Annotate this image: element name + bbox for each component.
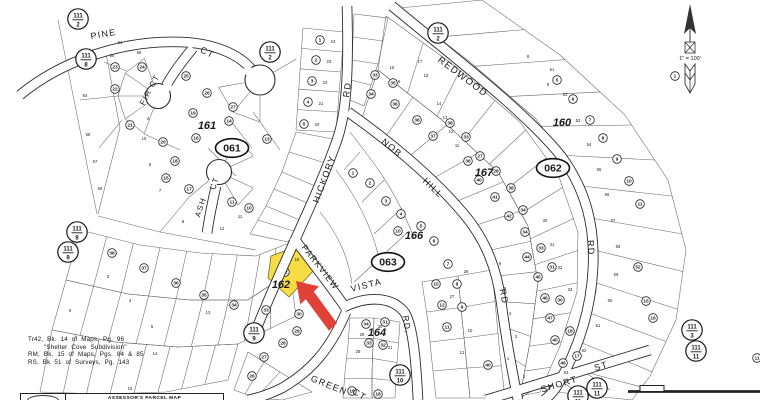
svg-text:15: 15 <box>163 176 169 182</box>
svg-text:35: 35 <box>390 81 396 87</box>
svg-text:33: 33 <box>463 135 469 141</box>
parcel-number-circle: 27 <box>476 152 485 161</box>
lot-number: 24 <box>331 39 336 44</box>
parcel-number-circle: 36 <box>464 157 473 166</box>
svg-text:31: 31 <box>382 320 388 326</box>
lot-number: 3 <box>107 274 110 279</box>
lot-number: 28 <box>356 349 361 354</box>
parcel-number-circle: 5 <box>300 120 309 129</box>
block-number: 164 <box>368 327 386 339</box>
stamp-title: ASSESSOR'S PARCEL MAP <box>66 394 223 400</box>
page-ref-circle: 1118 <box>76 49 96 69</box>
svg-text:23: 23 <box>112 65 118 71</box>
lot-number: 56 <box>98 186 103 191</box>
svg-text:34: 34 <box>522 230 528 236</box>
svg-text:26: 26 <box>204 91 210 97</box>
svg-text:34: 34 <box>520 208 526 214</box>
lot-number: 61 <box>596 323 601 328</box>
parcel-number-circle: 2 <box>366 179 375 188</box>
svg-text:4: 4 <box>307 100 310 106</box>
svg-text:11: 11 <box>444 325 449 331</box>
parcel-number-circle: 9 <box>458 303 467 312</box>
reference-line: RM, Bk. 15 of Maps, Pgs. 84 & 85 <box>28 351 144 359</box>
parcel-number-circle: 46 <box>559 359 568 368</box>
parcel-number-circle: 40 <box>484 361 493 370</box>
svg-text:17: 17 <box>186 187 192 193</box>
parcel-number-circle: 2 <box>312 56 321 65</box>
parcel-number-circle: 10 <box>394 227 403 236</box>
map-book-oval: 062 <box>537 159 570 178</box>
svg-text:24: 24 <box>139 65 145 71</box>
parcel-number-circle: 5 <box>553 76 562 85</box>
svg-text:6: 6 <box>433 239 436 245</box>
parcel-number-circle: 35 <box>389 79 398 88</box>
svg-text:7: 7 <box>589 118 592 124</box>
svg-text:36: 36 <box>173 281 179 287</box>
lot-number: 6 <box>149 162 152 167</box>
svg-text:6: 6 <box>572 97 575 103</box>
parcel-number-circle: 33 <box>537 244 546 253</box>
parcel-number-circle: 27 <box>229 103 238 112</box>
parcel-number-circle: 3 <box>308 77 317 86</box>
parcel-number-circle: 20 <box>159 138 168 147</box>
parcel-number-circle: 38 <box>446 119 455 128</box>
parcel-number-circle: 26 <box>248 372 257 381</box>
parcel-number-circle: 17 <box>185 185 194 194</box>
lot-number: 16 <box>128 386 133 391</box>
parcel-number-circle: 18 <box>171 157 180 166</box>
svg-text:111: 111 <box>63 247 73 253</box>
svg-text:11: 11 <box>637 202 642 208</box>
svg-text:33: 33 <box>538 246 544 252</box>
scale-text: 1" = 100' <box>679 56 701 62</box>
svg-text:10: 10 <box>397 379 404 385</box>
parcel-number-circle: 11 <box>228 198 237 207</box>
page-ref-circle: 1112 <box>260 42 280 62</box>
lot-number: 8 <box>527 54 530 59</box>
page-ref-circle: 11111 <box>568 386 588 400</box>
lot-number: 32 <box>558 265 563 270</box>
block-number: 166 <box>405 230 424 242</box>
parcel-number-circle: 21 <box>126 121 135 130</box>
lot-number: 9 <box>69 308 72 313</box>
assessor-stamp-box: ASSESSOR'S PARCEL MAP <box>20 393 224 400</box>
parcel-number-circle: 29 <box>293 327 302 336</box>
parcel-number-circle: 31 <box>548 263 557 272</box>
svg-text:36: 36 <box>414 118 420 124</box>
svg-text:5: 5 <box>556 78 559 84</box>
parcel-number-circle: 34 <box>519 206 528 215</box>
svg-text:10: 10 <box>626 179 632 185</box>
lot-number: 12 <box>460 350 465 355</box>
lot-number: 4 <box>509 311 512 316</box>
svg-text:7: 7 <box>447 262 450 268</box>
block-number: 160 <box>553 117 572 129</box>
svg-text:33: 33 <box>372 73 378 79</box>
parcel-number-circle: 30 <box>556 296 565 305</box>
parcel-number-circle: 22 <box>111 85 120 94</box>
parcel-number-circle: 27 <box>260 353 269 362</box>
parcel-number-circle: 30 <box>295 310 304 319</box>
svg-text:27: 27 <box>477 154 483 160</box>
svg-text:40: 40 <box>485 363 491 369</box>
svg-text:111: 111 <box>573 391 583 397</box>
lot-number: 59 <box>614 272 619 277</box>
svg-text:11: 11 <box>754 356 759 362</box>
parcel-number-circle: 16 <box>649 314 658 323</box>
svg-text:16: 16 <box>193 136 199 142</box>
street-label-vista: VISTA <box>350 276 383 293</box>
parcel-number-circle: 45 <box>551 336 560 345</box>
svg-text:47: 47 <box>547 316 553 322</box>
page-ref-circle: 1112 <box>428 23 448 43</box>
parcel-number-circle: 36 <box>391 100 400 109</box>
parcel-number-circle: 6 <box>569 95 578 104</box>
parcel-number-circle: 33 <box>462 133 471 142</box>
parcel-number-circle: 4 <box>304 98 313 107</box>
svg-text:45: 45 <box>552 338 558 344</box>
lot-number: 61 <box>118 40 123 45</box>
parcel-number-circle: 37 <box>140 264 149 273</box>
page-ref-circle: 1119 <box>244 323 264 343</box>
svg-text:36: 36 <box>392 102 398 108</box>
parcel-number-circle: 1 <box>349 169 358 178</box>
lot-number: 55 <box>597 167 602 172</box>
parcel-number-circle: 33 <box>262 306 271 315</box>
lot-number: 4 <box>129 298 132 303</box>
svg-text:3: 3 <box>311 79 314 85</box>
lot-number: 2 <box>523 374 526 379</box>
lot-number: 33 <box>568 287 573 292</box>
parcel-number-circle: 9 <box>613 155 622 164</box>
lot-number: 22 <box>323 80 328 85</box>
svg-text:21: 21 <box>127 123 133 129</box>
parcel-number-circle: 36 <box>413 116 422 125</box>
lot-number: 58 <box>86 132 91 137</box>
svg-text:44: 44 <box>524 255 530 261</box>
parcel-number-circle: 4 <box>397 210 406 219</box>
lot-number: 64 <box>83 93 88 98</box>
lot-number: 57 <box>611 218 616 223</box>
svg-text:111: 111 <box>433 28 443 34</box>
parcel-number-circle: 3 <box>382 197 391 206</box>
svg-text:2: 2 <box>369 181 372 187</box>
lot-number: 6 <box>499 261 502 266</box>
lot-number: 3 <box>515 334 518 339</box>
lot-number: 57 <box>93 159 98 164</box>
map-book-oval: 061 <box>216 139 249 158</box>
parcel-number-circle: 11 <box>636 200 645 209</box>
parcel-number-circle: 36 <box>172 279 181 288</box>
lot-number: 15 <box>295 257 300 262</box>
lot-number: 12 <box>220 226 225 231</box>
lot-number: 30 <box>543 218 548 223</box>
lot-number: 60 <box>608 298 613 303</box>
svg-text:45: 45 <box>535 275 541 281</box>
svg-text:14: 14 <box>226 119 232 125</box>
scale-bar <box>628 386 760 392</box>
svg-text:10: 10 <box>395 229 401 235</box>
svg-text:38: 38 <box>109 251 115 257</box>
svg-text:19: 19 <box>190 111 196 117</box>
lot-number: 31 <box>388 345 393 350</box>
svg-text:28: 28 <box>493 169 499 175</box>
parcel-number-circle: 34 <box>367 90 376 99</box>
lot-number: 65 <box>110 53 115 58</box>
parcel-number-circle: 32 <box>379 341 388 350</box>
svg-text:062: 062 <box>544 163 562 175</box>
parcel-number-circle: 26 <box>203 89 212 98</box>
street-label-green: GREEN <box>309 373 348 397</box>
parcel-number-circle: 17 <box>573 352 582 361</box>
svg-text:33: 33 <box>263 308 269 314</box>
parcel-number-circle: 11 <box>753 354 760 363</box>
svg-text:1: 1 <box>674 74 677 80</box>
lot-number: 29 <box>360 332 365 337</box>
north-arrow: 1" = 100' <box>679 4 701 93</box>
svg-text:11: 11 <box>229 200 234 206</box>
parcel-number-circle: 7 <box>444 260 453 269</box>
parcel-number-circle: 10 <box>245 204 254 213</box>
svg-text:46: 46 <box>560 361 566 367</box>
block-number: 161 <box>198 120 216 132</box>
lot-number: 13 <box>206 310 211 315</box>
lot-number: 63 <box>564 370 569 375</box>
street-label-rd: RD <box>585 240 596 256</box>
lot-number: 7 <box>159 188 162 193</box>
svg-text:33: 33 <box>366 341 372 347</box>
lot-number: 51 <box>550 67 555 72</box>
parcel-number-circle: 38 <box>507 184 516 193</box>
svg-text:061: 061 <box>223 143 241 155</box>
svg-text:1: 1 <box>352 171 355 177</box>
svg-text:34: 34 <box>368 92 374 98</box>
reference-line: Tr42, Bk. 14 of Maps, Pg. 96 <box>28 336 144 344</box>
parcel-number-circle: 25 <box>182 72 191 81</box>
parcel-number-circle: 15 <box>642 297 651 306</box>
svg-text:31: 31 <box>549 265 555 271</box>
parcel-map-stage: 3224232221206566646157585617181516141312… <box>0 0 760 400</box>
svg-text:111: 111 <box>395 370 405 376</box>
svg-text:111: 111 <box>265 47 275 53</box>
svg-text:32: 32 <box>380 343 386 349</box>
svg-text:18: 18 <box>567 329 573 335</box>
svg-text:11: 11 <box>693 355 700 361</box>
svg-text:8: 8 <box>602 136 605 142</box>
lot-number: 66 <box>137 50 142 55</box>
svg-text:5: 5 <box>303 122 306 128</box>
lot-number: 20 <box>315 122 320 127</box>
lot-number: 12 <box>449 129 454 134</box>
parcel-number-circle: 37 <box>429 132 438 141</box>
lot-number: 53 <box>576 118 581 123</box>
parcel-number-circle: 34 <box>521 228 530 237</box>
svg-text:20: 20 <box>160 140 166 146</box>
svg-text:18: 18 <box>375 392 381 398</box>
svg-text:9: 9 <box>461 305 464 311</box>
parcel-number-circle: 44 <box>523 253 532 262</box>
page-ref-circle: 1118 <box>67 222 87 242</box>
svg-text:22: 22 <box>112 87 118 93</box>
parcel-number-circle: 5 <box>417 222 426 231</box>
lot-number: 27 <box>450 294 455 299</box>
svg-text:29: 29 <box>294 329 300 335</box>
lot-number: 14 <box>437 101 442 106</box>
parcel-number-circle: 12 <box>438 301 447 310</box>
parcel-number-circle: 19 <box>189 109 198 118</box>
parcel-number-circle: 1 <box>671 72 680 81</box>
parcel-number-circle: 7 <box>586 116 595 125</box>
parcel-number-circle: 15 <box>162 174 171 183</box>
block-number: 162 <box>272 279 290 291</box>
svg-text:27: 27 <box>230 105 236 111</box>
map-reference-notes: Tr42, Bk. 14 of Maps, Pg. 96 "Shelter Co… <box>28 336 144 367</box>
lot-number: 8 <box>182 219 185 224</box>
lot-number: 62 <box>582 348 587 353</box>
svg-text:27: 27 <box>261 355 267 361</box>
reference-line: "Shelter Cove Subdivision" <box>28 344 144 352</box>
svg-text:8: 8 <box>456 282 459 288</box>
svg-text:16: 16 <box>650 316 656 322</box>
street-label-rd: RD <box>341 81 353 98</box>
parcel-number-circle: 18 <box>566 327 575 336</box>
lot-number: 56 <box>605 192 610 197</box>
svg-text:10: 10 <box>246 206 252 212</box>
parcel-number-circle: 6 <box>430 237 439 246</box>
county-seal <box>21 394 66 400</box>
lot-number: 54 <box>587 142 592 147</box>
map-book-oval: 063 <box>372 253 405 272</box>
svg-text:3: 3 <box>385 199 388 205</box>
parcel-number-circle: 16 <box>192 134 201 143</box>
lot-number: 9 <box>547 82 550 87</box>
parcel-number-circle: 52 <box>634 263 643 272</box>
parcel-number-circle: 13 <box>263 135 272 144</box>
lot-number: 17 <box>418 59 423 64</box>
lot-number: 31 <box>550 242 555 247</box>
lot-number: 23 <box>327 59 332 64</box>
svg-text:111: 111 <box>81 54 91 60</box>
page-ref-circle: 1119 <box>58 242 78 262</box>
svg-text:37: 37 <box>430 134 436 140</box>
parcel-number-circle: 47 <box>546 314 555 323</box>
reference-line: RS, Bk 51 of Surveys, Pg. 143 <box>28 359 144 367</box>
svg-text:46: 46 <box>542 296 548 302</box>
lot-number: 52 <box>563 92 568 97</box>
parcel-number-circle: 24 <box>138 63 147 72</box>
page-ref-circle: 11110 <box>390 365 410 385</box>
parcel-number-circle: 1 <box>316 36 325 45</box>
street-label-pine: PINE <box>90 27 118 41</box>
parcel-number-circle: 46 <box>541 294 550 303</box>
parcel-number-circle: 8 <box>453 280 462 289</box>
svg-text:1: 1 <box>319 38 322 44</box>
parcel-number-circle: 18 <box>374 390 383 399</box>
svg-text:111: 111 <box>73 14 83 20</box>
svg-text:4: 4 <box>400 212 403 218</box>
svg-text:26: 26 <box>249 374 255 380</box>
parcel-number-circle: 35 <box>200 291 209 300</box>
lot-number: 15 <box>390 65 395 70</box>
svg-text:11: 11 <box>594 392 601 398</box>
svg-text:36: 36 <box>465 159 471 165</box>
svg-text:12: 12 <box>439 303 445 309</box>
lot-number: 21 <box>319 101 324 106</box>
parcel-number-circle: 34 <box>230 301 239 310</box>
lot-number: 5 <box>151 324 154 329</box>
svg-text:34: 34 <box>231 303 237 309</box>
svg-text:111: 111 <box>249 328 259 334</box>
svg-text:18: 18 <box>172 159 178 165</box>
svg-text:28: 28 <box>280 341 286 347</box>
lot-number: 14 <box>153 351 158 356</box>
svg-text:30: 30 <box>557 298 563 304</box>
parcel-number-circle: 14 <box>225 117 234 126</box>
svg-text:111: 111 <box>592 383 602 389</box>
lot-number: 18 <box>424 73 429 78</box>
page-ref-circle: 11111 <box>587 378 607 398</box>
svg-text:38: 38 <box>508 186 514 192</box>
svg-text:15: 15 <box>643 299 649 305</box>
lot-number: 26 <box>464 269 469 274</box>
svg-text:9: 9 <box>616 157 619 163</box>
parcel-number-circle: 38 <box>108 249 117 258</box>
parcel-number-circle: 28 <box>279 339 288 348</box>
svg-text:17: 17 <box>574 354 580 360</box>
svg-text:30: 30 <box>296 312 302 318</box>
svg-text:13: 13 <box>264 137 270 143</box>
svg-text:52: 52 <box>635 265 641 271</box>
svg-text:111: 111 <box>691 346 701 352</box>
parcel-number-circle: 33 <box>365 339 374 348</box>
parcel-number-circle: 8 <box>599 134 608 143</box>
parcel-number-circle: 11 <box>443 323 452 332</box>
svg-text:42: 42 <box>506 214 512 220</box>
parcel-number-circle: 41 <box>491 193 500 202</box>
svg-text:111: 111 <box>687 325 697 331</box>
svg-text:25: 25 <box>183 74 189 80</box>
lot-number: 10 <box>142 136 147 141</box>
block-number: 167 <box>475 167 494 179</box>
svg-text:37: 37 <box>141 266 147 272</box>
parcel-number-circle: 10 <box>625 177 634 186</box>
parcel-number-circle: 45 <box>534 273 543 282</box>
page-ref-circle: 1112 <box>68 9 88 29</box>
svg-text:063: 063 <box>379 257 397 269</box>
svg-text:35: 35 <box>201 293 207 299</box>
page-ref-circle: 11111 <box>686 341 706 361</box>
page-ref-circle: 1113 <box>682 320 702 340</box>
lot-number: 11 <box>238 214 243 219</box>
lot-number: 10 <box>468 328 473 333</box>
svg-text:111: 111 <box>72 227 82 233</box>
svg-text:2: 2 <box>315 58 318 64</box>
svg-text:5: 5 <box>420 224 423 230</box>
lot-number: 11 <box>455 143 460 148</box>
svg-text:38: 38 <box>447 121 453 127</box>
parcel-number-circle: 42 <box>505 212 514 221</box>
svg-text:15: 15 <box>433 282 439 288</box>
parcel-number-circle: 23 <box>111 63 120 72</box>
parcel-number-circle: 31 <box>381 318 390 327</box>
lot-number: 58 <box>616 244 621 249</box>
svg-text:41: 41 <box>492 195 498 201</box>
street-label-rd-: RD. <box>401 315 413 335</box>
parcel-number-circle: 33 <box>371 71 380 80</box>
parcel-number-circle: 15 <box>432 280 441 289</box>
